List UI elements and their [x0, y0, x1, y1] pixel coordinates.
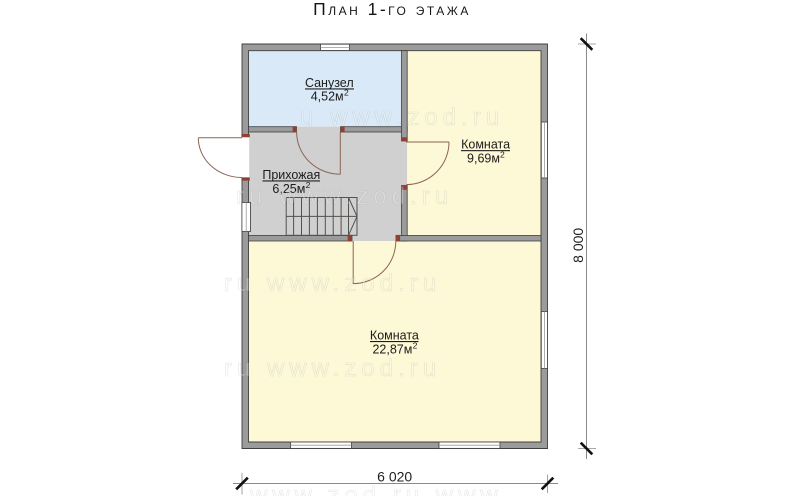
svg-text:ru www.zod.ru: ru www.zod.ru [224, 270, 441, 297]
svg-text:2: 2 [344, 87, 349, 97]
svg-text:4,52м: 4,52м [311, 89, 344, 103]
svg-text:План 1-го этажа: План 1-го этажа [313, 0, 471, 19]
svg-text:8 000: 8 000 [570, 228, 586, 263]
svg-text:Комната: Комната [370, 329, 419, 343]
svg-text:2: 2 [500, 150, 505, 160]
svg-text:ru www.zod.ru: ru www.zod.ru [236, 183, 453, 210]
svg-text:ru www.zod.ru: ru www.zod.ru [224, 355, 441, 382]
svg-text:2: 2 [413, 341, 418, 351]
svg-text:u www.zod.ru: u www.zod.ru [300, 104, 504, 131]
svg-text:9,69м: 9,69м [467, 151, 500, 165]
svg-text:Прихожая: Прихожая [262, 168, 320, 182]
svg-text:www.zod.ru www: www.zod.ru www [249, 482, 503, 496]
